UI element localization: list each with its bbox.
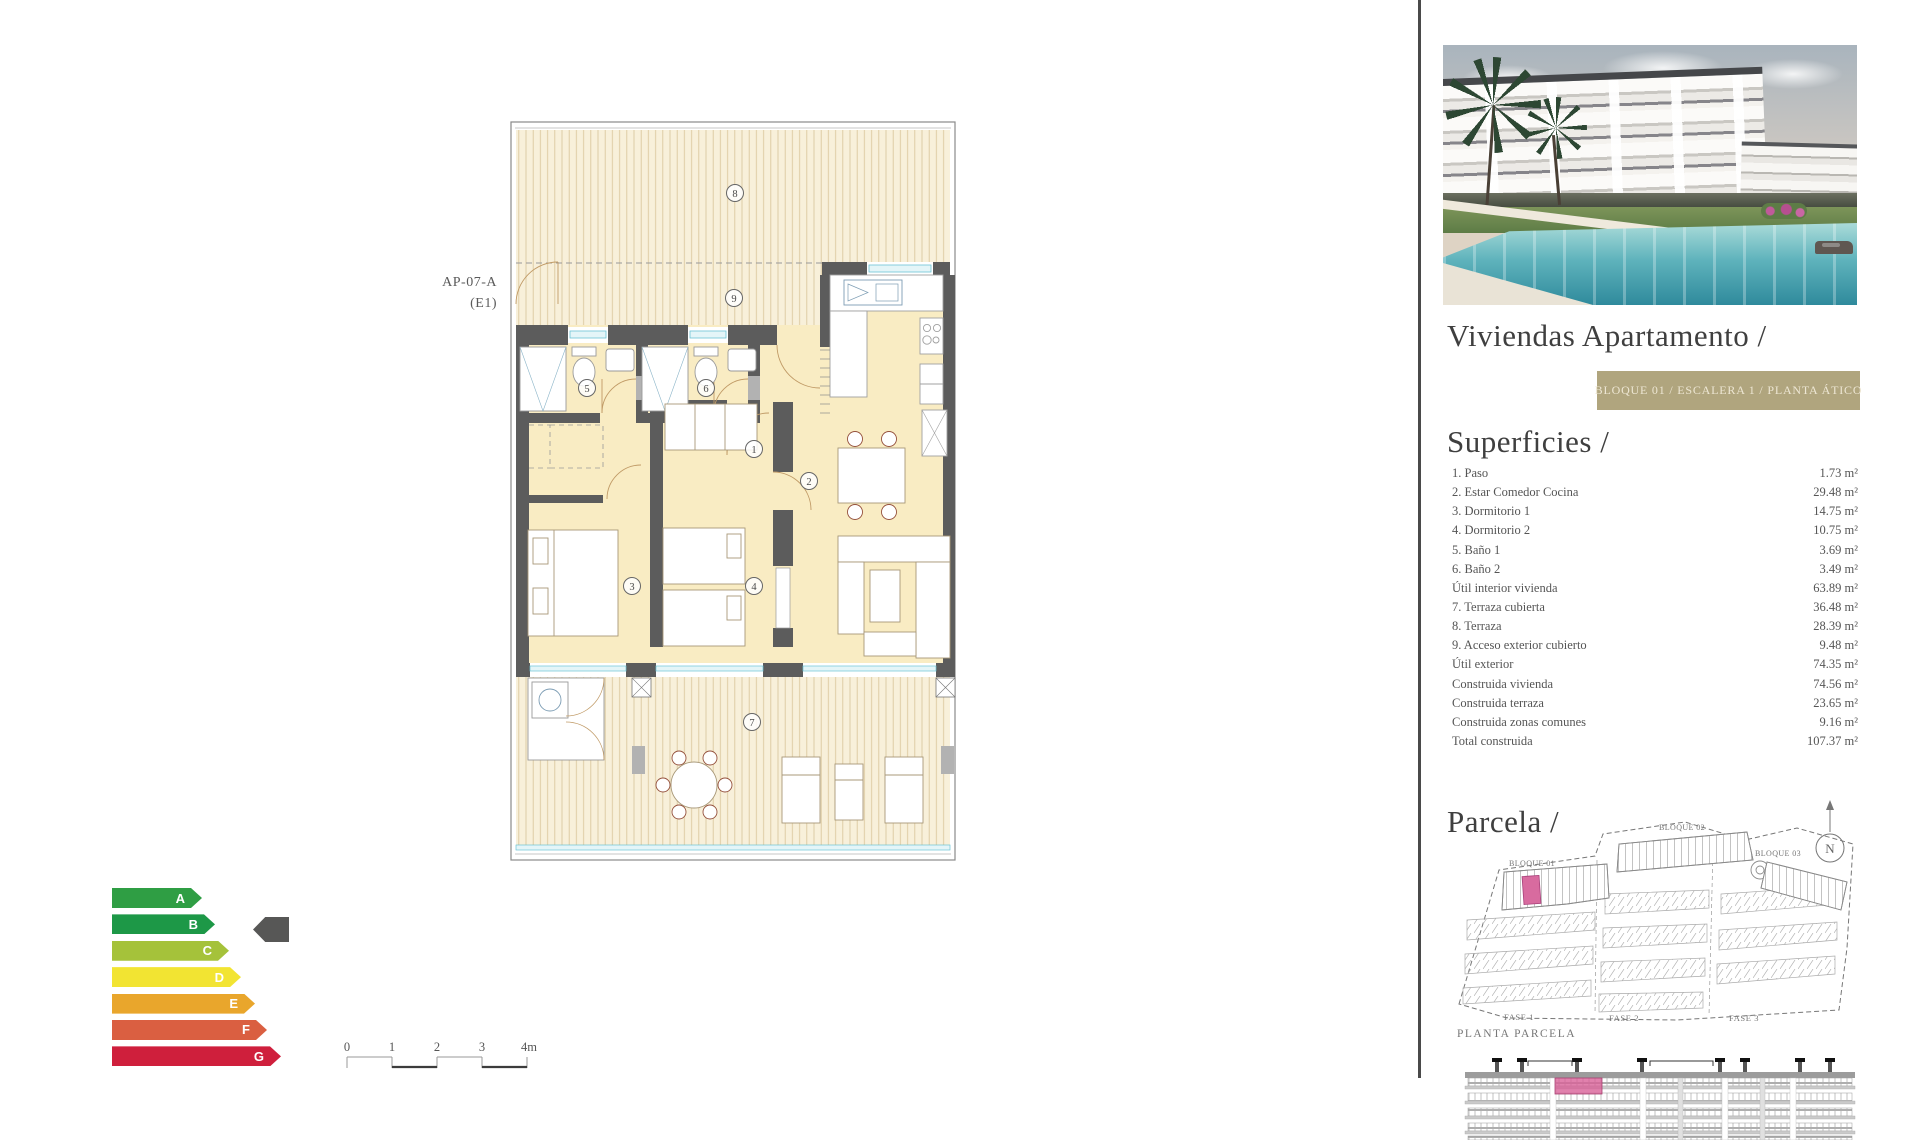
parcela-caption: PLANTA PARCELA — [1457, 1028, 1576, 1040]
svg-text:2: 2 — [434, 1040, 440, 1054]
page-title: Viviendas Apartamento / — [1447, 318, 1767, 354]
unit-code-label: AP-07-A (E1) — [372, 272, 497, 314]
superficies-row: Construida vivienda74.56 m² — [1452, 675, 1858, 694]
superficies-row: Construida zonas comunes9.16 m² — [1452, 713, 1858, 732]
location-badge-text: BLOQUE 01 / ESCALERA 1 / PLANTA ÁTICO — [1595, 383, 1863, 398]
energy-grade-c: C — [112, 941, 229, 961]
terrace-glass-rail — [516, 845, 950, 850]
sliding-door — [776, 568, 790, 628]
superficies-heading: Superficies / — [1447, 424, 1609, 460]
scale-bar: 0 1 2 3 4m — [344, 1040, 544, 1070]
energy-grade-e: E — [112, 994, 255, 1014]
fase-2-label: FASE 2 — [1609, 1013, 1639, 1023]
energy-rating-pointer — [253, 917, 289, 942]
floor-plan-drawing: 1 2 3 4 5 6 7 8 9 — [508, 118, 958, 863]
vertical-divider — [1418, 0, 1421, 1078]
svg-text:N: N — [1825, 841, 1835, 856]
superficies-row: 2. Estar Comedor Cocina29.48 m² — [1452, 483, 1858, 502]
superficies-row: Útil interior vivienda63.89 m² — [1452, 579, 1858, 598]
superficies-row: Total construida107.37 m² — [1452, 732, 1858, 751]
superficies-row: 4. Dormitorio 210.75 m² — [1452, 521, 1858, 540]
superficies-row: 5. Baño 13.69 m² — [1452, 541, 1858, 560]
fase-3-label: FASE 3 — [1729, 1013, 1759, 1023]
elevation-floors — [1465, 1078, 1855, 1140]
svg-text:5: 5 — [584, 384, 589, 395]
site-plan: N BLOQUE 01 B — [1447, 798, 1860, 1050]
svg-text:3: 3 — [629, 582, 634, 593]
svg-text:9: 9 — [731, 294, 736, 305]
energy-grade-d: D — [112, 967, 241, 987]
superficies-row: 3. Dormitorio 114.75 m² — [1452, 502, 1858, 521]
unit-code: AP-07-A — [372, 272, 497, 293]
bloque-02-label: BLOQUE 02 — [1659, 823, 1705, 832]
bloque-03-label: BLOQUE 03 — [1755, 849, 1801, 858]
energy-grade-f: F — [112, 1020, 267, 1040]
floor-plan-sheet: AP-07-A (E1) — [0, 0, 1920, 1140]
unit-entrance: (E1) — [372, 293, 497, 314]
svg-text:3: 3 — [479, 1040, 485, 1054]
svg-text:6: 6 — [703, 384, 708, 395]
superficies-row: 6. Baño 23.49 m² — [1452, 560, 1858, 579]
superficies-row: 8. Terraza28.39 m² — [1452, 617, 1858, 636]
svg-text:4m: 4m — [521, 1040, 537, 1054]
energy-grade-b: B — [112, 914, 215, 934]
roof-slab — [1465, 1072, 1855, 1078]
access-9-deck — [516, 263, 822, 325]
svg-text:1: 1 — [751, 445, 756, 456]
energy-grade-a: A — [112, 888, 202, 908]
svg-text:7: 7 — [749, 718, 754, 729]
superficies-row: Útil exterior74.35 m² — [1452, 655, 1858, 674]
palm-tree — [1525, 97, 1587, 159]
superficies-row: 7. Terraza cubierta36.48 m² — [1452, 598, 1858, 617]
flower-bushes — [1761, 203, 1807, 219]
svg-text:0: 0 — [344, 1040, 350, 1054]
car — [1815, 241, 1853, 254]
superficies-row: 1. Paso1.73 m² — [1452, 464, 1858, 483]
highlighted-unit-elevation — [1555, 1078, 1602, 1094]
bedroom1-furniture — [528, 530, 618, 636]
superficies-table: 1. Paso1.73 m² 2. Estar Comedor Cocina29… — [1452, 464, 1858, 751]
superficies-row: Construida terraza23.65 m² — [1452, 694, 1858, 713]
building-render-photo — [1443, 45, 1857, 305]
building-elevation — [1460, 1056, 1860, 1140]
svg-text:1: 1 — [389, 1040, 395, 1054]
bloque-01-label: BLOQUE 01 — [1509, 859, 1555, 868]
svg-text:8: 8 — [732, 189, 737, 200]
highlighted-unit — [1522, 875, 1541, 904]
fase-1-label: FASE 1 — [1504, 1012, 1534, 1022]
energy-grade-g: G — [112, 1046, 281, 1066]
roof-elements — [1492, 1058, 1835, 1072]
svg-text:2: 2 — [806, 477, 811, 488]
superficies-row: 9. Acceso exterior cubierto9.48 m² — [1452, 636, 1858, 655]
svg-text:4: 4 — [751, 582, 757, 593]
location-badge: BLOQUE 01 / ESCALERA 1 / PLANTA ÁTICO — [1597, 371, 1860, 410]
